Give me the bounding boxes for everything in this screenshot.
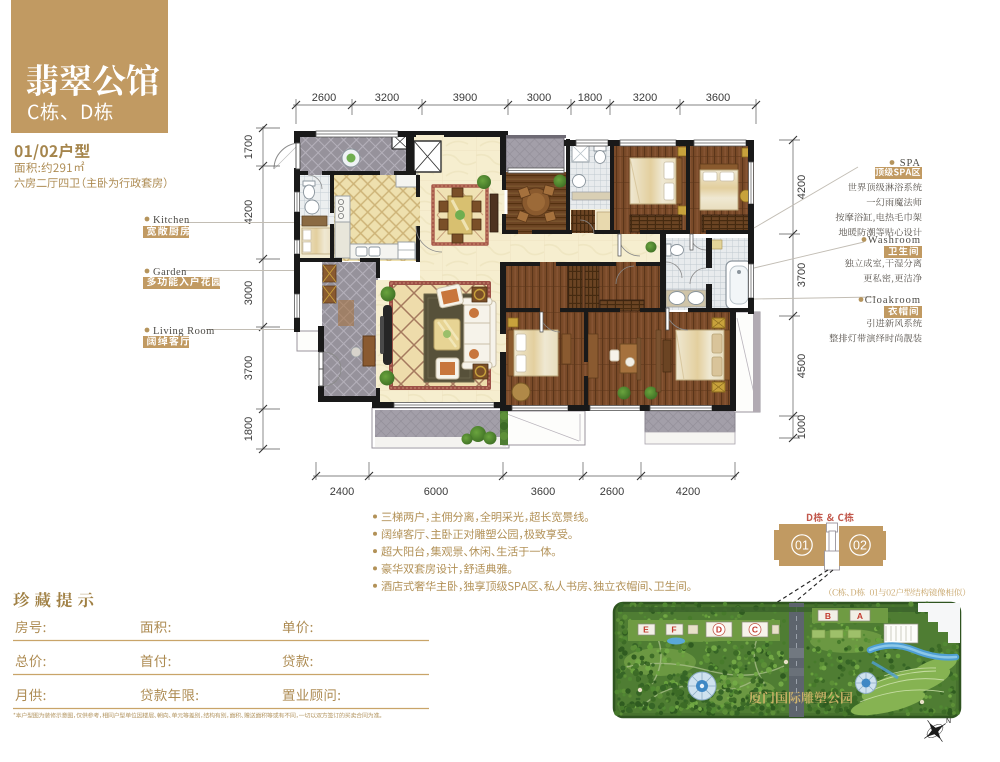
svg-text:3000: 3000 <box>527 92 551 104</box>
svg-text:1800: 1800 <box>243 417 255 441</box>
svg-text:4500: 4500 <box>796 354 808 378</box>
svg-text:3600: 3600 <box>706 92 730 104</box>
svg-text:Cloakroom: Cloakroom <box>865 295 921 306</box>
svg-text:1800: 1800 <box>578 92 602 104</box>
svg-text:F: F <box>671 625 676 635</box>
svg-text:3700: 3700 <box>243 356 255 380</box>
svg-text:D: D <box>716 625 722 635</box>
svg-text:2600: 2600 <box>600 486 624 498</box>
svg-text:C: C <box>752 625 758 635</box>
svg-text:6000: 6000 <box>424 486 448 498</box>
svg-text:1700: 1700 <box>243 135 255 159</box>
svg-text:3700: 3700 <box>796 263 808 287</box>
svg-text:4200: 4200 <box>243 200 255 224</box>
svg-text:3600: 3600 <box>531 486 555 498</box>
svg-text:1000: 1000 <box>796 415 808 439</box>
svg-text:N: N <box>946 718 951 725</box>
svg-text:4200: 4200 <box>676 486 700 498</box>
svg-text:B: B <box>825 611 831 621</box>
svg-text:A: A <box>857 611 863 621</box>
svg-text:2600: 2600 <box>312 92 336 104</box>
svg-text:02: 02 <box>853 538 867 552</box>
svg-text:E: E <box>643 625 649 635</box>
svg-text:Garden: Garden <box>153 267 187 278</box>
svg-text:3900: 3900 <box>453 92 477 104</box>
svg-text:Living Room: Living Room <box>153 326 215 337</box>
svg-text:3000: 3000 <box>243 281 255 305</box>
svg-text:3200: 3200 <box>633 92 657 104</box>
svg-text:Washroom: Washroom <box>868 235 921 246</box>
svg-text:Kitchen: Kitchen <box>153 215 190 226</box>
svg-text:3200: 3200 <box>375 92 399 104</box>
svg-text:2400: 2400 <box>330 486 354 498</box>
svg-text:4200: 4200 <box>796 175 808 199</box>
svg-text:01: 01 <box>795 538 809 552</box>
